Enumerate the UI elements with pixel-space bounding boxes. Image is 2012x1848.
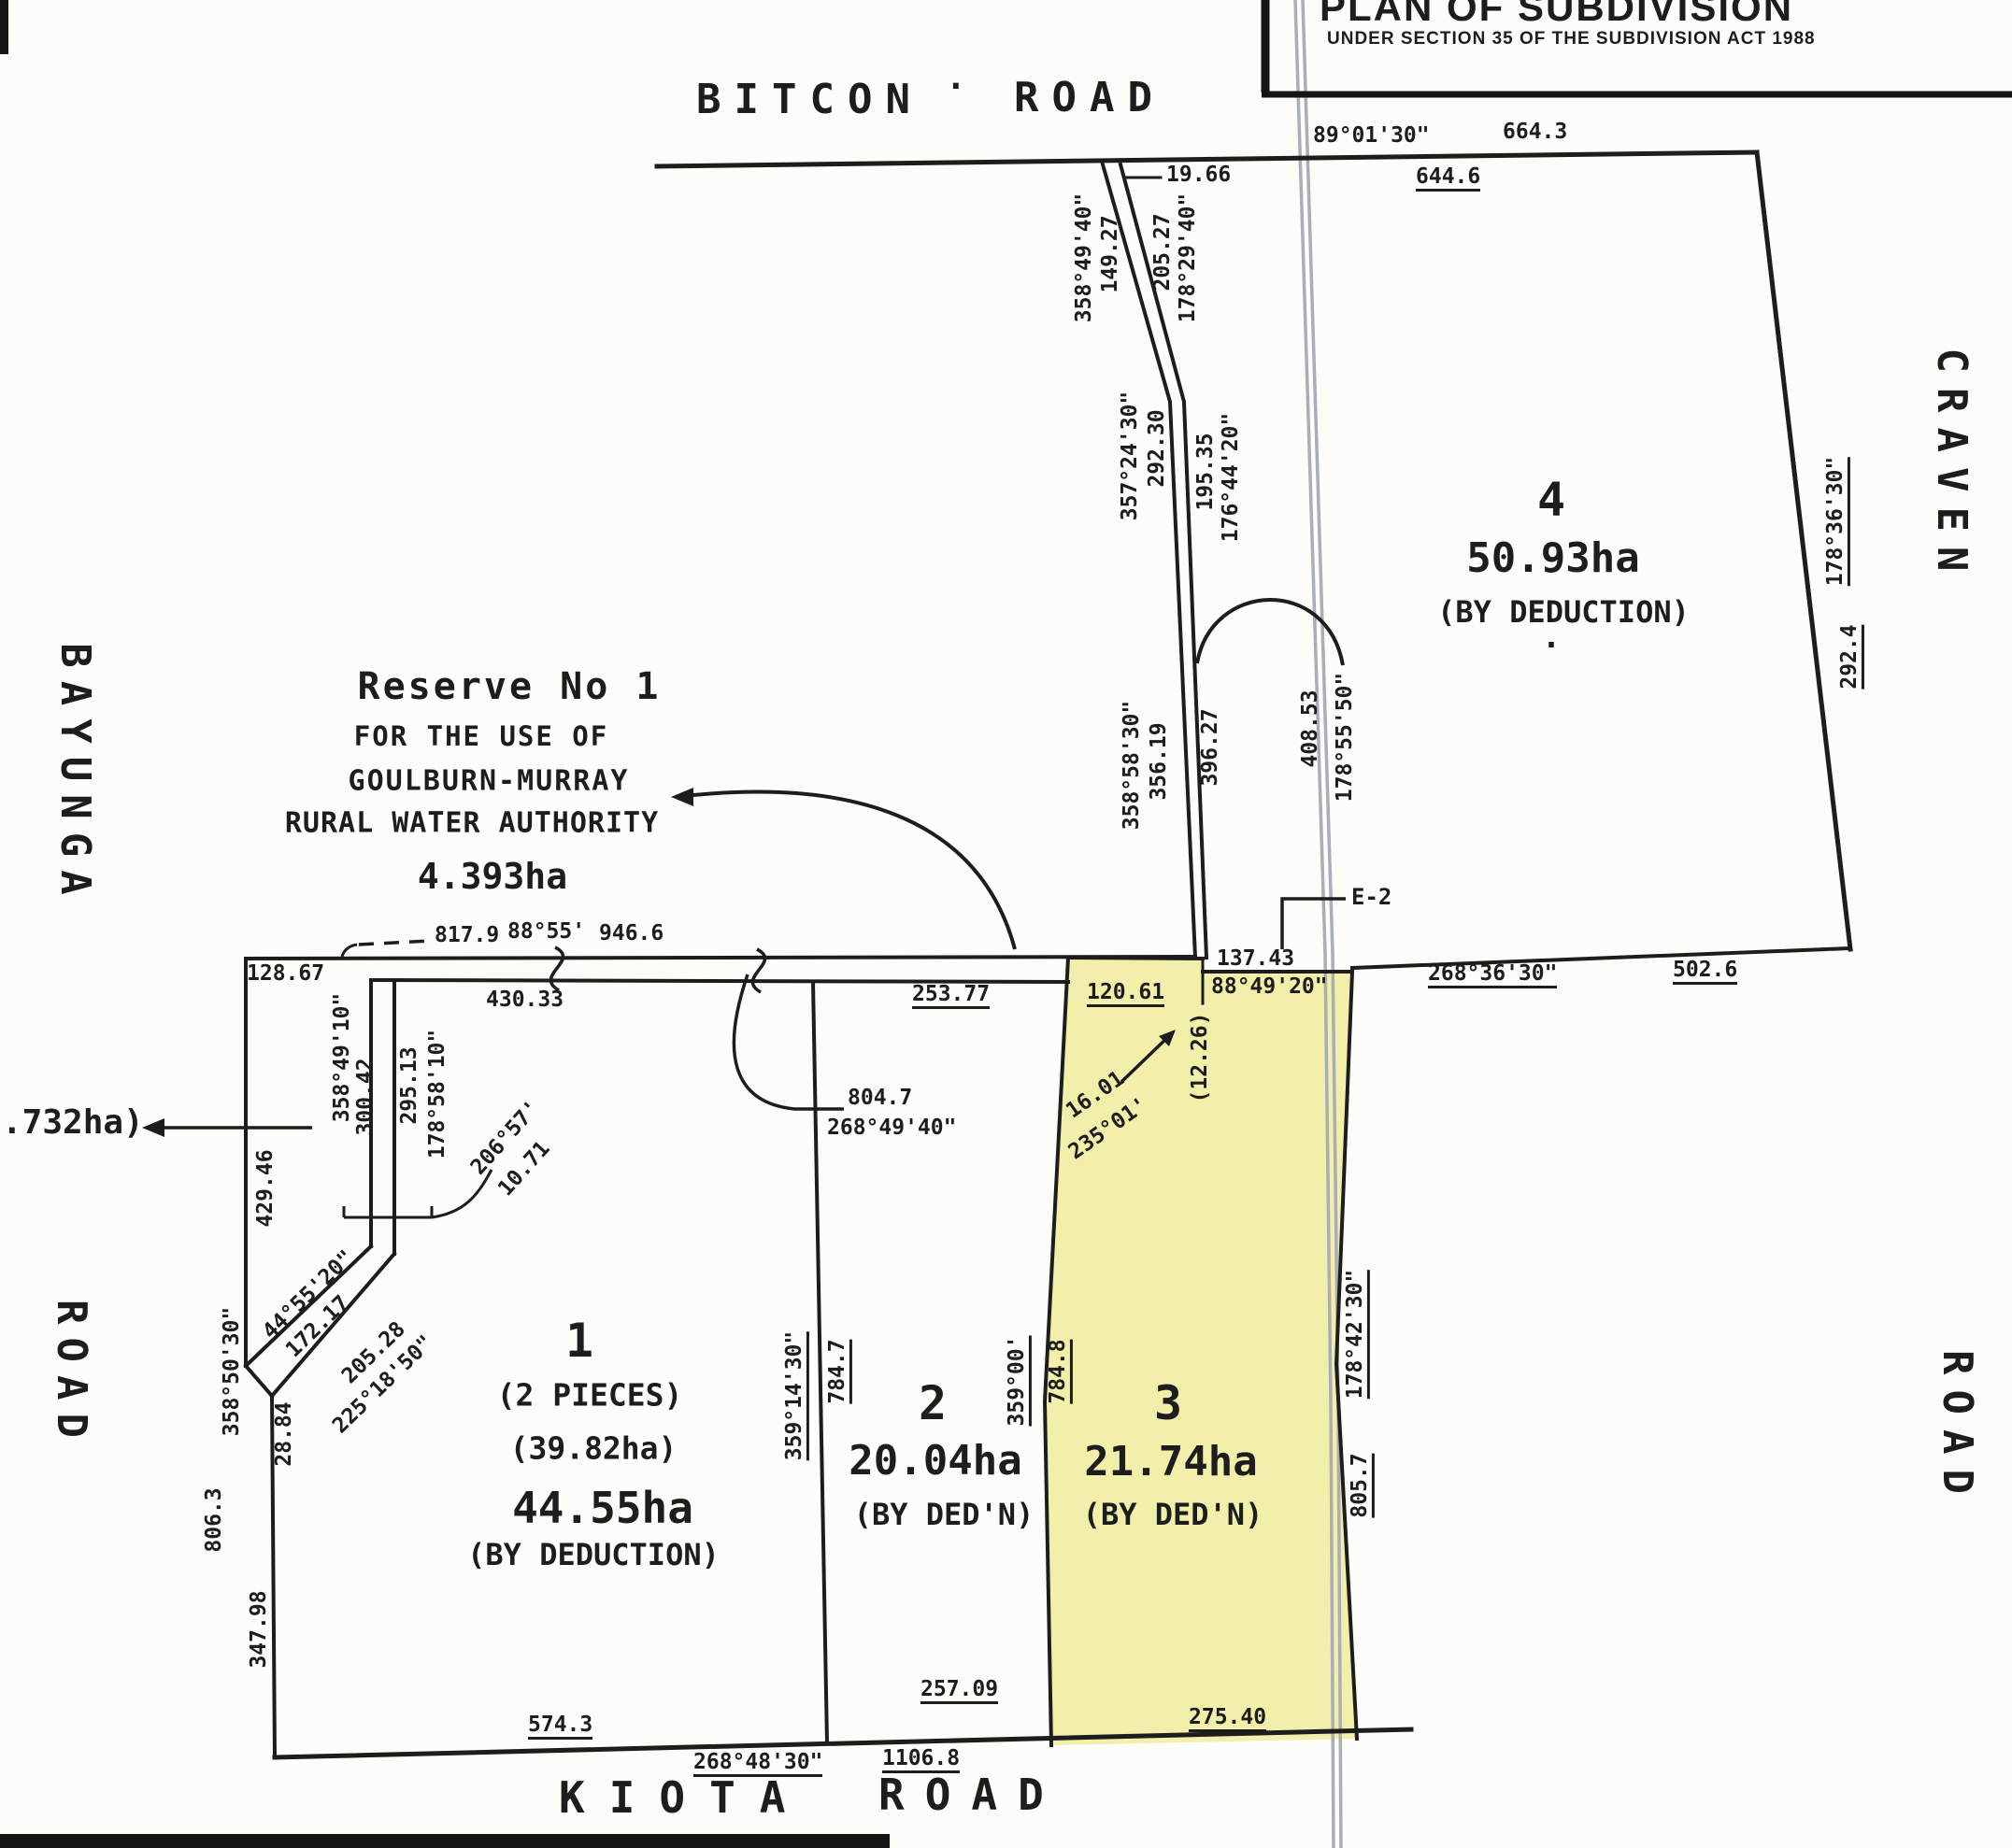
measurement-label: 88°49'20": [1211, 975, 1328, 998]
road-name-craven-road: ROAD: [1935, 1350, 1978, 1509]
measurement-label: 1106.8: [882, 1747, 960, 1773]
measurement-label: 268°49'40": [827, 1116, 956, 1139]
plan-title: PLAN OF SUBDIVISION: [1320, 0, 1793, 28]
measurement-label: 178°55'50": [1334, 673, 1356, 802]
measurement-label: 429.46: [254, 1149, 277, 1227]
lot3-number: 3: [1154, 1379, 1182, 1429]
measurement-label: 806.3: [203, 1487, 225, 1552]
dashed-leader: [342, 941, 430, 957]
measurement-label: 137.43: [1217, 947, 1294, 974]
measurement-label: 644.6: [1416, 165, 1480, 192]
measurement-label: 358°49'10": [331, 993, 353, 1122]
lot1-note: (2 PIECES): [497, 1380, 683, 1413]
reserve-purpose-line1: FOR THE USE OF: [354, 722, 608, 750]
dot-mark: ·: [1542, 630, 1561, 663]
measurement-label: 178°29'40": [1177, 193, 1199, 322]
measurement-label: 268°48'30": [693, 1751, 822, 1777]
measurement-label: 359°14'30": [783, 1331, 809, 1460]
measurement-label: 176°44'20": [1220, 413, 1242, 542]
lot1-piece2-area: .732ha): [2, 1105, 144, 1141]
measurement-label: 357°24'30": [1119, 391, 1141, 520]
measurement-label: 358°49'40": [1073, 193, 1095, 322]
measurement-label: 128.67: [247, 962, 324, 985]
measurement-label: 804.7: [848, 1087, 912, 1109]
measurement-label: 664.3: [1503, 121, 1567, 143]
measurement-label: 88°55': [507, 920, 585, 943]
measurement-label: 784.8: [1047, 1339, 1073, 1403]
lot1-area: 44.55ha: [512, 1486, 693, 1530]
measurement-label: 178°42'30": [1344, 1270, 1370, 1399]
plan-subtitle: UNDER SECTION 35 OF THE SUBDIVISION ACT …: [1327, 30, 1816, 49]
lot1-method: (BY DEDUCTION): [467, 1540, 720, 1571]
lot4-method: (BY DEDUCTION): [1437, 597, 1690, 629]
measurement-label: 149.27: [1099, 215, 1121, 292]
measurement-label: 430.33: [486, 988, 564, 1011]
measurement-label: 817.9: [435, 924, 499, 946]
lot3-method: (BY DED'N): [1083, 1500, 1263, 1531]
lot2-number: 2: [919, 1379, 947, 1429]
measurement-label: 257.09: [920, 1678, 998, 1704]
dot-mark: ·: [946, 69, 966, 105]
measurement-label: 292.4: [1838, 624, 1864, 689]
road-name-bitcon: BITCON: [696, 78, 923, 121]
measurement-label: 347.98: [248, 1590, 270, 1668]
measurement-label: 396.27: [1199, 708, 1221, 786]
measurement-label: 19.66: [1166, 163, 1231, 186]
measurement-label: (12.26): [1189, 1013, 1211, 1103]
measurement-label: 268°36'30": [1428, 962, 1557, 988]
lot1-number: 1: [565, 1316, 593, 1366]
measurement-label: 502.6: [1673, 959, 1737, 985]
plan-linework: [0, 0, 2012, 1848]
scan-mark-bottom-bar: [0, 1834, 890, 1848]
measurement-label: 28.84: [273, 1401, 295, 1466]
reserve-purpose-line3: RURAL WATER AUTHORITY: [285, 808, 659, 838]
measurement-label: 358°50'30": [221, 1307, 243, 1436]
measurement-label: 295.13: [398, 1046, 421, 1124]
measurement-label: 359°00': [1006, 1336, 1032, 1427]
measurement-label: 946.6: [599, 922, 664, 945]
measurement-label: 253.77: [912, 983, 990, 1009]
parcel-boundaries: [246, 152, 1850, 1757]
reserve-area: 4.393ha: [418, 859, 567, 896]
measurement-label: 356.19: [1148, 722, 1170, 800]
measurement-label: 120.61: [1087, 981, 1164, 1007]
measurement-label: 89°01'30": [1313, 124, 1430, 147]
measurement-label: 178°58'10": [426, 1030, 449, 1159]
reserve-purpose-line2: GOULBURN-MURRAY: [349, 766, 630, 796]
lot2-method: (BY DED'N): [854, 1500, 1035, 1531]
measurement-label: 408.53: [1299, 689, 1321, 767]
measurement-label: 805.7: [1348, 1453, 1375, 1517]
measurement-label: 784.7: [826, 1339, 852, 1403]
lot4-number: 4: [1537, 476, 1565, 525]
measurement-label: 300.42: [354, 1058, 377, 1135]
road-name-bayunga-road: ROAD: [50, 1300, 93, 1451]
measurement-label: 195.35: [1194, 433, 1217, 510]
road-name-kiota-road: ROAD: [878, 1772, 1064, 1817]
easement-label: E-2: [1351, 886, 1391, 909]
lot2-area: 20.04ha: [849, 1440, 1021, 1483]
measurement-label: 205.27: [1151, 213, 1174, 291]
scan-mark-top-left: [0, 0, 8, 54]
lot4-area: 50.93ha: [1466, 537, 1639, 580]
plan-of-subdivision-sheet: PLAN OF SUBDIVISIONUNDER SECTION 35 OF T…: [0, 0, 2012, 1848]
measurement-label: 358°58'30": [1120, 701, 1143, 830]
road-name-craven: CRAVEN: [1930, 348, 1973, 587]
road-name-bayunga: BAYUNGA: [53, 643, 96, 907]
reserve-name: Reserve No 1: [358, 667, 662, 706]
road-name-kiota: KIOTA: [559, 1775, 809, 1820]
road-name-bitcon-road: ROAD: [1014, 77, 1165, 120]
lot3-area: 21.74ha: [1084, 1441, 1257, 1484]
measurement-label: 292.30: [1146, 409, 1168, 487]
measurement-label: 275.40: [1189, 1706, 1266, 1732]
measurement-label: 178°36'30": [1824, 457, 1850, 586]
lot1-piece-area: (39.82ha): [510, 1433, 678, 1466]
measurement-label: 574.3: [528, 1713, 592, 1740]
